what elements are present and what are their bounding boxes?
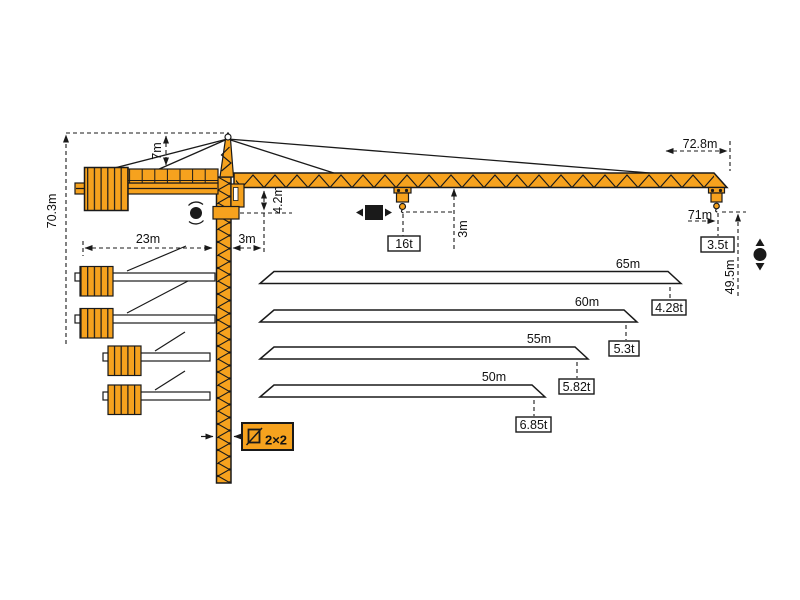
mast-section-callout: 2×2	[201, 423, 293, 450]
jib-capacity-label: 6.85t	[520, 418, 548, 432]
jib-length-label: 50m	[482, 370, 506, 384]
hook-height-label: 49.5m	[723, 260, 737, 295]
jib-capacity-label: 4.28t	[655, 301, 683, 315]
hook-block	[397, 193, 409, 202]
jib-option-60m	[260, 310, 637, 322]
hook-radius-label: 71m	[688, 208, 712, 222]
apex-pulley	[225, 134, 231, 140]
jib-capacity-label: 5.82t	[563, 380, 591, 394]
max-capacity-label: 16t	[395, 237, 413, 251]
ballast-set	[103, 371, 210, 415]
ballast-leader	[155, 332, 185, 351]
ballast-set	[75, 246, 215, 296]
arrow-right-icon	[385, 209, 392, 217]
tip-radius-label: 72.8m	[683, 137, 718, 151]
jib-length-label: 55m	[527, 332, 551, 346]
slewing-symbol	[189, 202, 204, 224]
ballast-leader	[127, 246, 186, 271]
slewing-arc-bottom	[189, 221, 204, 224]
jib-length-label: 60m	[575, 295, 599, 309]
counter-jib-radius-label: 23m	[136, 232, 160, 246]
jib-option-55m	[260, 347, 588, 359]
trolley-wheel	[405, 189, 408, 192]
slewing-dot	[190, 207, 202, 219]
arrow-down-icon	[756, 263, 765, 271]
slewing-arc-top	[189, 202, 204, 205]
hook-block	[711, 193, 722, 202]
arrow-left-icon	[356, 209, 363, 217]
trolley-frame	[394, 188, 411, 194]
ballast-configurations	[75, 246, 215, 415]
slewing-platform	[213, 207, 239, 220]
ballast-blocks-stripes	[108, 385, 141, 415]
trolley-travel-symbol	[356, 205, 392, 220]
crane-structure	[75, 134, 727, 483]
hoist-symbol	[754, 239, 767, 271]
ballast-leader	[155, 371, 185, 390]
value-boxes	[388, 236, 734, 432]
jib-pendant-short	[228, 139, 341, 175]
hook-clearance-label: 3m	[456, 220, 470, 237]
ballast-blocks-stripes	[108, 346, 141, 376]
ballast-blocks-stripes	[80, 309, 113, 339]
arrow-up-icon	[756, 239, 765, 247]
jib-capacity-label: 5.3t	[614, 342, 635, 356]
trolley-wheel	[711, 189, 714, 192]
main-jib-lattice	[236, 174, 714, 188]
jib-foot-clearance-label: 4.2m	[271, 186, 285, 214]
trolley-travel-square	[365, 205, 383, 220]
tip-capacity-label: 3.5t	[707, 238, 728, 252]
trolley-frame	[709, 188, 725, 194]
ballast-leader	[127, 281, 188, 313]
rear-offset-label: 3m	[238, 232, 255, 246]
hoist-dot	[754, 248, 767, 261]
tower-mast-lattice	[217, 177, 232, 483]
tower-head-height-label: 7m	[150, 142, 164, 159]
ballast-blocks-stripes	[80, 267, 113, 297]
jib-option-65m	[260, 272, 681, 284]
crane-diagram-page: 2×2 70.3m 7m 23m 3m 4.2m 16t 3m 72.8m 71…	[0, 0, 800, 600]
counter-jib-ballast-stripes	[85, 168, 129, 211]
jib-pendant-long	[228, 139, 651, 173]
trolley-wheel	[719, 189, 722, 192]
tower-crane-dimension-diagram: 2×2 70.3m 7m 23m 3m 4.2m 16t 3m 72.8m 71…	[0, 0, 800, 600]
jib-length-label: 65m	[616, 257, 640, 271]
cab-window	[234, 188, 239, 201]
hook	[400, 204, 406, 210]
ballast-set	[103, 332, 210, 376]
trolley-wheel	[397, 189, 400, 192]
mast-section-label: 2×2	[265, 432, 287, 447]
trolley-hook	[394, 188, 411, 214]
hook	[714, 203, 720, 209]
total-height-label: 70.3m	[45, 194, 59, 229]
jib-option-50m	[260, 385, 545, 397]
